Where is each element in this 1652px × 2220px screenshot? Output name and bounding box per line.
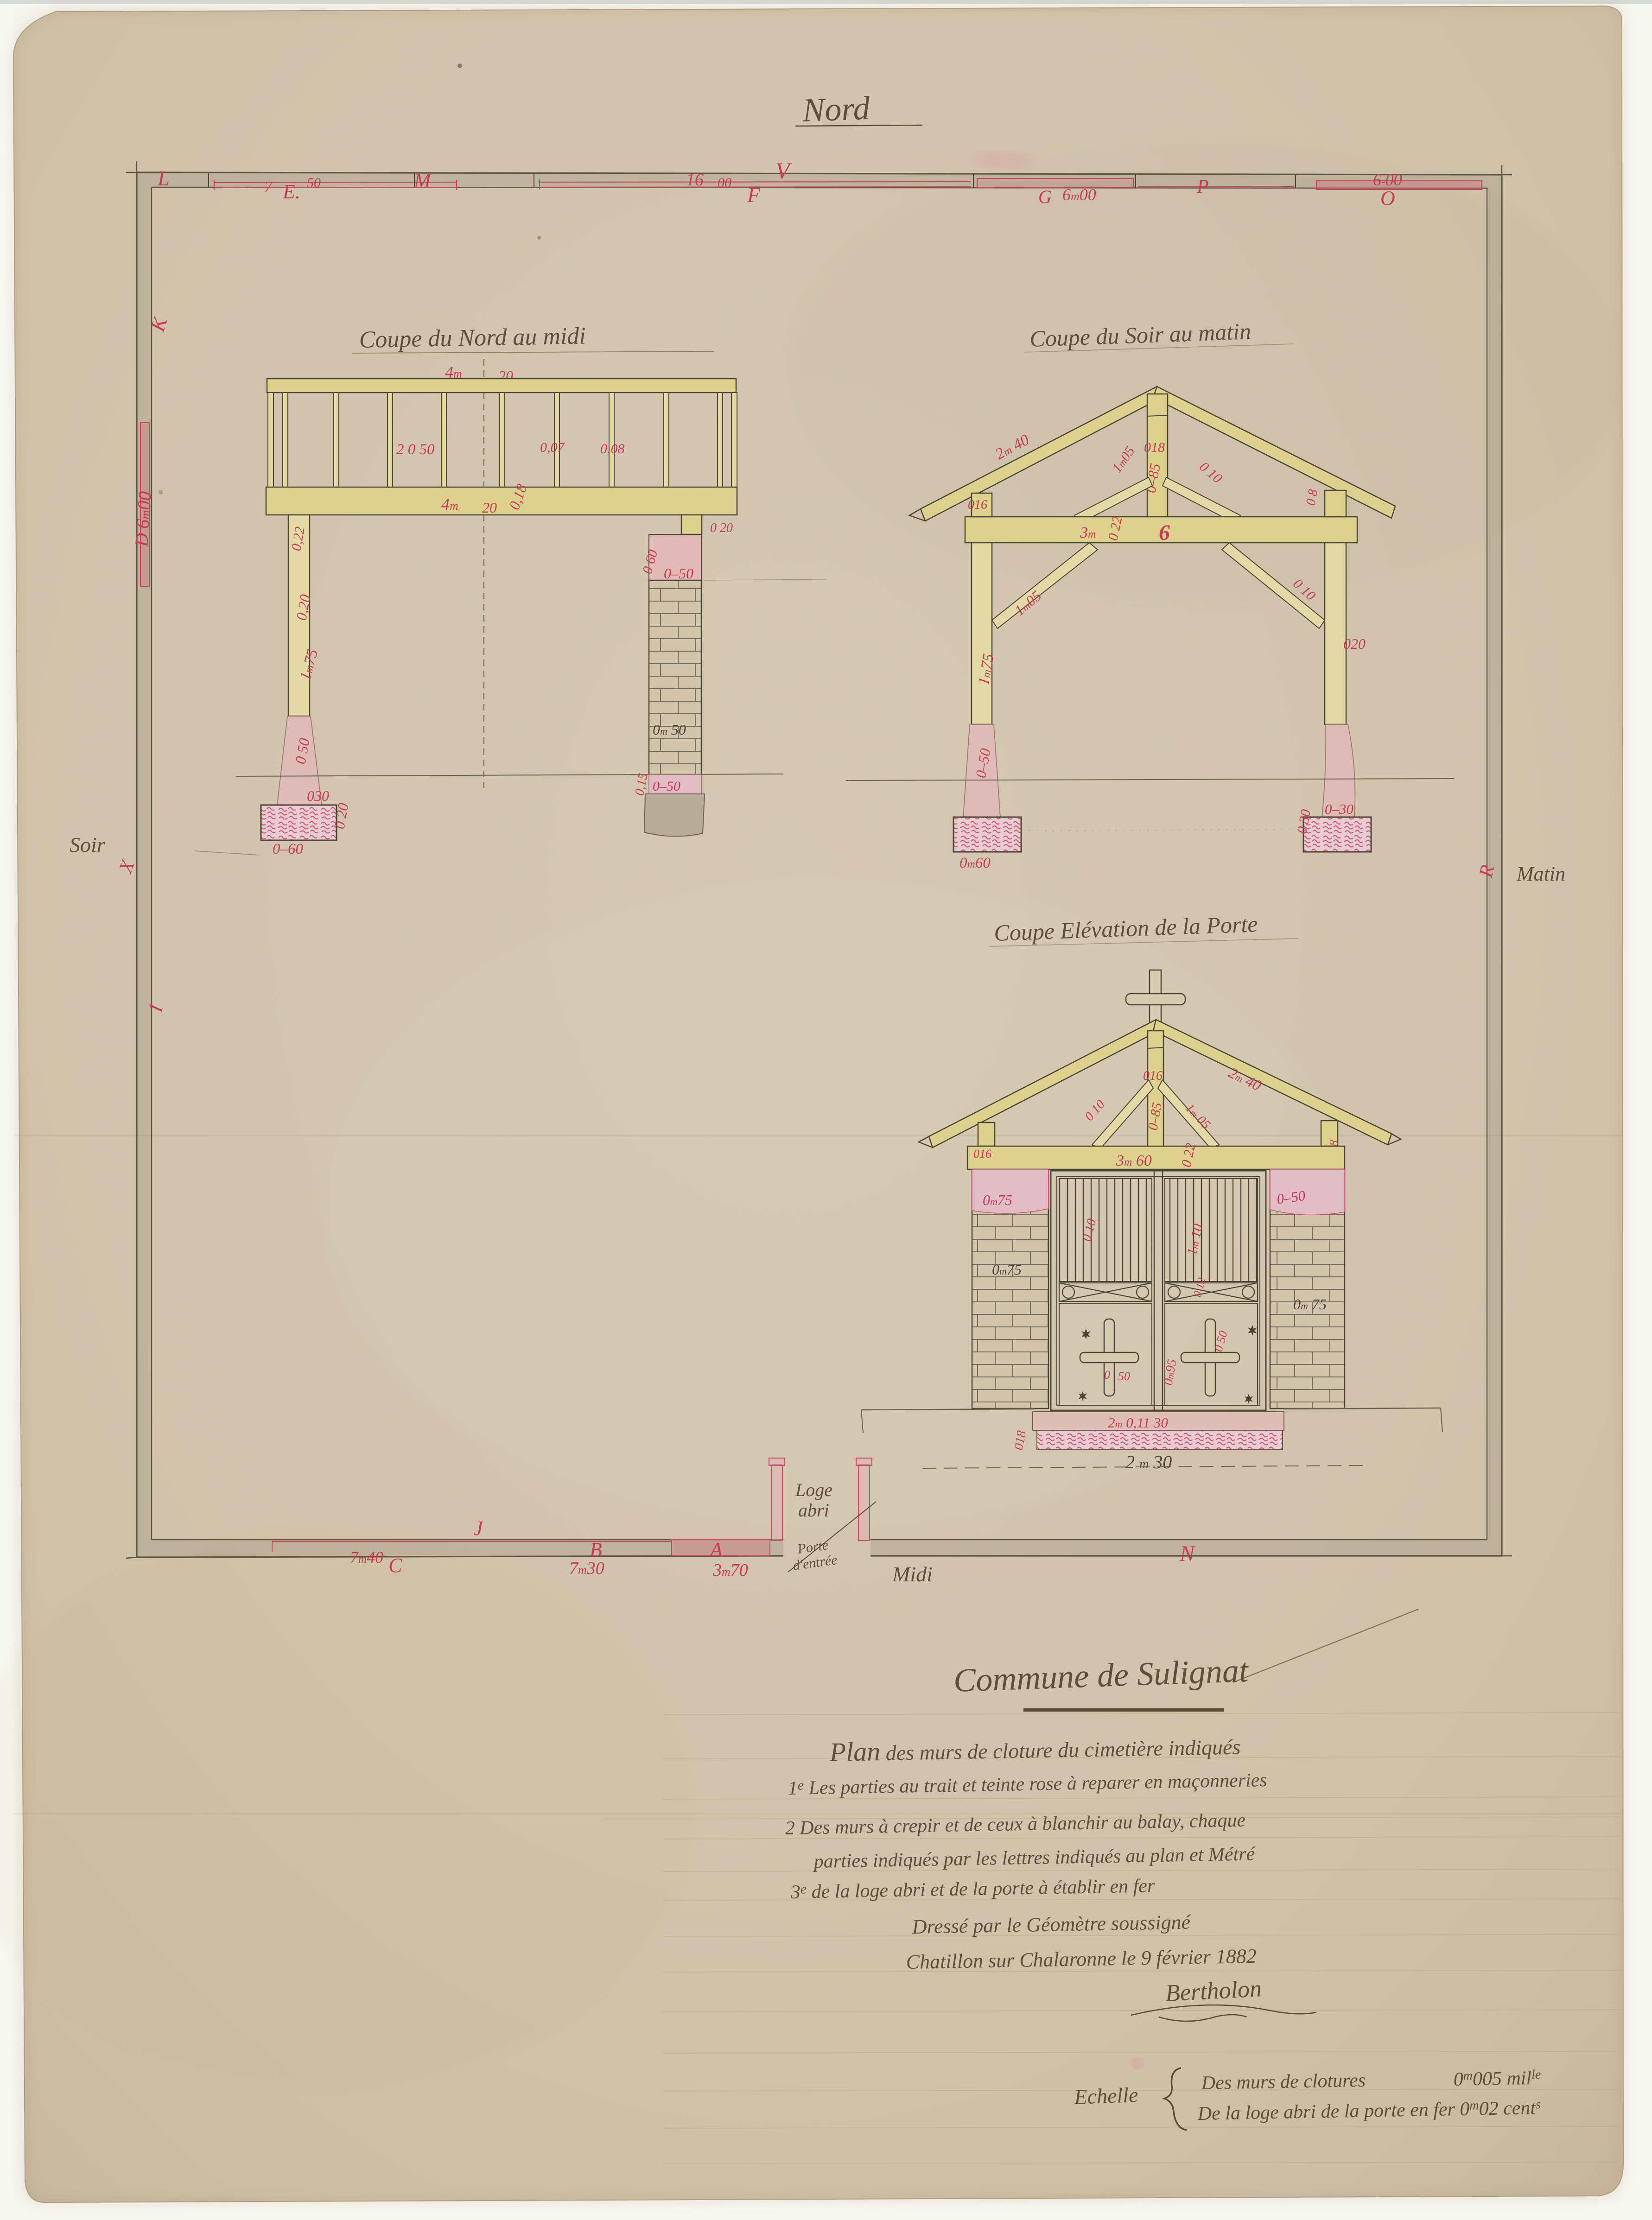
svg-text:20: 20 [482, 499, 497, 516]
svg-text:6: 6 [1159, 520, 1170, 545]
svg-text:D 6m00: D 6m00 [131, 491, 155, 548]
svg-text:0: 0 [1104, 1368, 1110, 1382]
svg-text:018: 018 [1144, 440, 1165, 455]
svg-text:O: O [1380, 187, 1395, 209]
svg-text:7m30: 7m30 [569, 1559, 604, 1578]
svg-text:0 8: 0 8 [1303, 488, 1321, 507]
svg-text:Echelle: Echelle [1074, 2083, 1139, 2109]
svg-text:Des murs de clotures: Des murs de clotures [1201, 2070, 1366, 2094]
svg-text:Nord: Nord [801, 89, 871, 129]
svg-text:Loge: Loge [795, 1479, 832, 1500]
svg-text:016: 016 [968, 498, 987, 512]
svg-text:7m40: 7m40 [350, 1548, 383, 1567]
svg-text:F: F [747, 183, 761, 207]
svg-text:020: 020 [1343, 635, 1366, 652]
svg-text:50: 50 [307, 175, 321, 190]
svg-text:030: 030 [307, 787, 329, 804]
svg-text:J: J [474, 1517, 484, 1540]
svg-text:0m75: 0m75 [992, 1261, 1022, 1278]
svg-text:3m70: 3m70 [712, 1560, 748, 1580]
svg-text:16: 16 [686, 170, 704, 190]
svg-text:Bertholon: Bertholon [1165, 1975, 1263, 2007]
svg-text:A: A [709, 1538, 723, 1561]
svg-text:0–30: 0–30 [1325, 801, 1354, 817]
svg-text:B: B [590, 1538, 602, 1561]
svg-text:016: 016 [1143, 1069, 1163, 1083]
svg-text:6m00: 6m00 [1062, 185, 1096, 204]
svg-text:0m 50: 0m 50 [653, 721, 686, 738]
svg-text:7: 7 [264, 178, 273, 196]
svg-text:0,07: 0,07 [540, 440, 565, 455]
svg-text:Coupe du Nord au midi: Coupe du Nord au midi [359, 323, 586, 353]
svg-text:2 m 30: 2 m 30 [1125, 1452, 1172, 1472]
svg-text:Soir: Soir [70, 833, 106, 856]
svg-text:L: L [157, 166, 170, 190]
svg-text:C: C [388, 1554, 402, 1577]
svg-text:0–50: 0–50 [664, 565, 693, 582]
svg-text:50: 50 [1118, 1370, 1130, 1383]
svg-text:0,08: 0,08 [600, 441, 625, 457]
svg-text:2 0 50: 2 0 50 [396, 441, 435, 458]
svg-text:0m60: 0m60 [959, 855, 991, 871]
svg-text:0 20: 0 20 [710, 521, 733, 535]
svg-text:6-00: 6-00 [1373, 171, 1402, 189]
svg-text:00: 00 [718, 175, 731, 190]
svg-text:0–60: 0–60 [273, 841, 304, 857]
svg-text:E.: E. [282, 180, 300, 203]
svg-text:G: G [1038, 186, 1052, 207]
svg-text:0–50: 0–50 [653, 779, 680, 794]
svg-text:M: M [413, 169, 432, 192]
svg-text:Matin: Matin [1516, 863, 1565, 885]
svg-text:N: N [1179, 1541, 1196, 1566]
svg-text:3m 60: 3m 60 [1116, 1152, 1152, 1169]
svg-text:0m 75: 0m 75 [1293, 1296, 1327, 1313]
svg-text:Midi: Midi [892, 1562, 933, 1586]
svg-text:016: 016 [973, 1147, 991, 1161]
svg-text:0m75: 0m75 [983, 1192, 1012, 1208]
svg-text:abri: abri [798, 1500, 829, 1521]
svg-text:P: P [1196, 176, 1209, 197]
